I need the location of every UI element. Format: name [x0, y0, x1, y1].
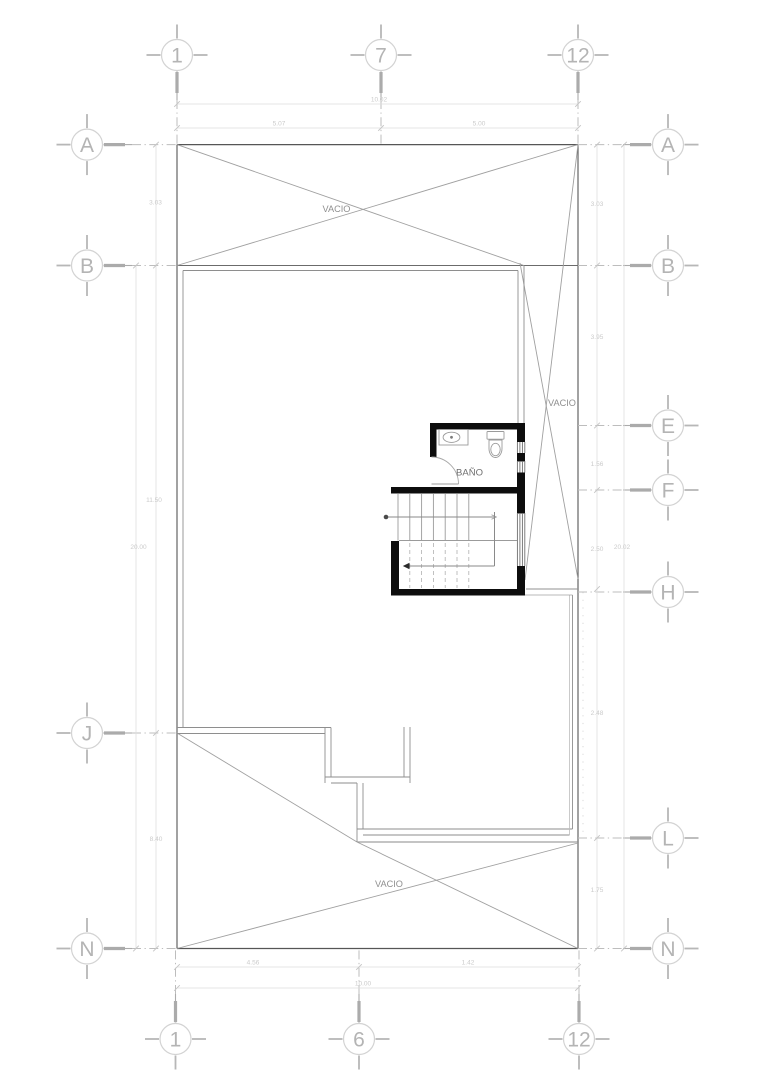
svg-text:20.00: 20.00 [130, 544, 147, 551]
svg-text:12: 12 [566, 44, 589, 67]
svg-text:F: F [662, 479, 675, 502]
svg-text:3.95: 3.95 [591, 334, 604, 341]
svg-text:5.00: 5.00 [473, 121, 486, 128]
svg-text:N: N [79, 938, 94, 961]
svg-text:3.03: 3.03 [591, 201, 604, 208]
svg-text:5.07: 5.07 [273, 121, 286, 128]
svg-text:H: H [660, 581, 675, 604]
svg-text:J: J [82, 722, 93, 745]
svg-text:12: 12 [567, 1028, 590, 1051]
svg-text:A: A [80, 134, 94, 157]
svg-text:1.42: 1.42 [462, 960, 475, 967]
svg-text:10.00: 10.00 [355, 981, 372, 988]
svg-text:B: B [80, 255, 94, 278]
svg-text:A: A [661, 134, 675, 157]
svg-text:3.03: 3.03 [149, 200, 162, 207]
svg-text:1: 1 [171, 44, 183, 67]
svg-text:N: N [660, 938, 675, 961]
svg-text:L: L [662, 827, 674, 850]
svg-text:1.56: 1.56 [591, 461, 604, 468]
svg-text:6: 6 [353, 1028, 365, 1051]
svg-text:E: E [661, 415, 675, 438]
svg-text:VACIO: VACIO [375, 879, 403, 889]
svg-text:VACIO: VACIO [548, 398, 576, 408]
svg-text:2.48: 2.48 [591, 710, 604, 717]
svg-text:11.50: 11.50 [146, 497, 162, 504]
svg-text:20.02: 20.02 [614, 544, 631, 551]
svg-text:VACIO: VACIO [323, 204, 351, 214]
svg-text:2.50: 2.50 [591, 546, 604, 553]
svg-text:B: B [661, 255, 675, 278]
svg-text:10.02: 10.02 [371, 97, 388, 104]
svg-text:BAÑO: BAÑO [456, 468, 483, 479]
svg-text:1.75: 1.75 [591, 887, 604, 894]
svg-text:1: 1 [170, 1028, 182, 1051]
svg-text:4.56: 4.56 [247, 960, 260, 967]
svg-text:7: 7 [375, 44, 387, 67]
svg-text:8.40: 8.40 [150, 836, 163, 843]
